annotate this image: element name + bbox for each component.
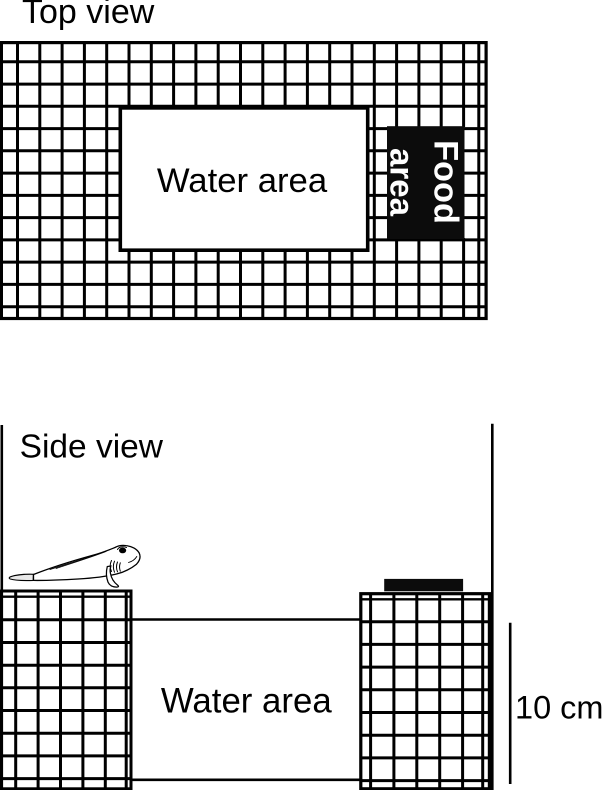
svg-text:Top view: Top view — [22, 0, 155, 31]
svg-text:area: area — [384, 148, 421, 217]
svg-text:10 cm: 10 cm — [515, 690, 602, 726]
svg-text:Side view: Side view — [20, 429, 164, 466]
svg-text:Food: Food — [427, 140, 465, 224]
svg-text:Water area: Water area — [157, 162, 328, 200]
svg-text:Water area: Water area — [161, 682, 332, 721]
